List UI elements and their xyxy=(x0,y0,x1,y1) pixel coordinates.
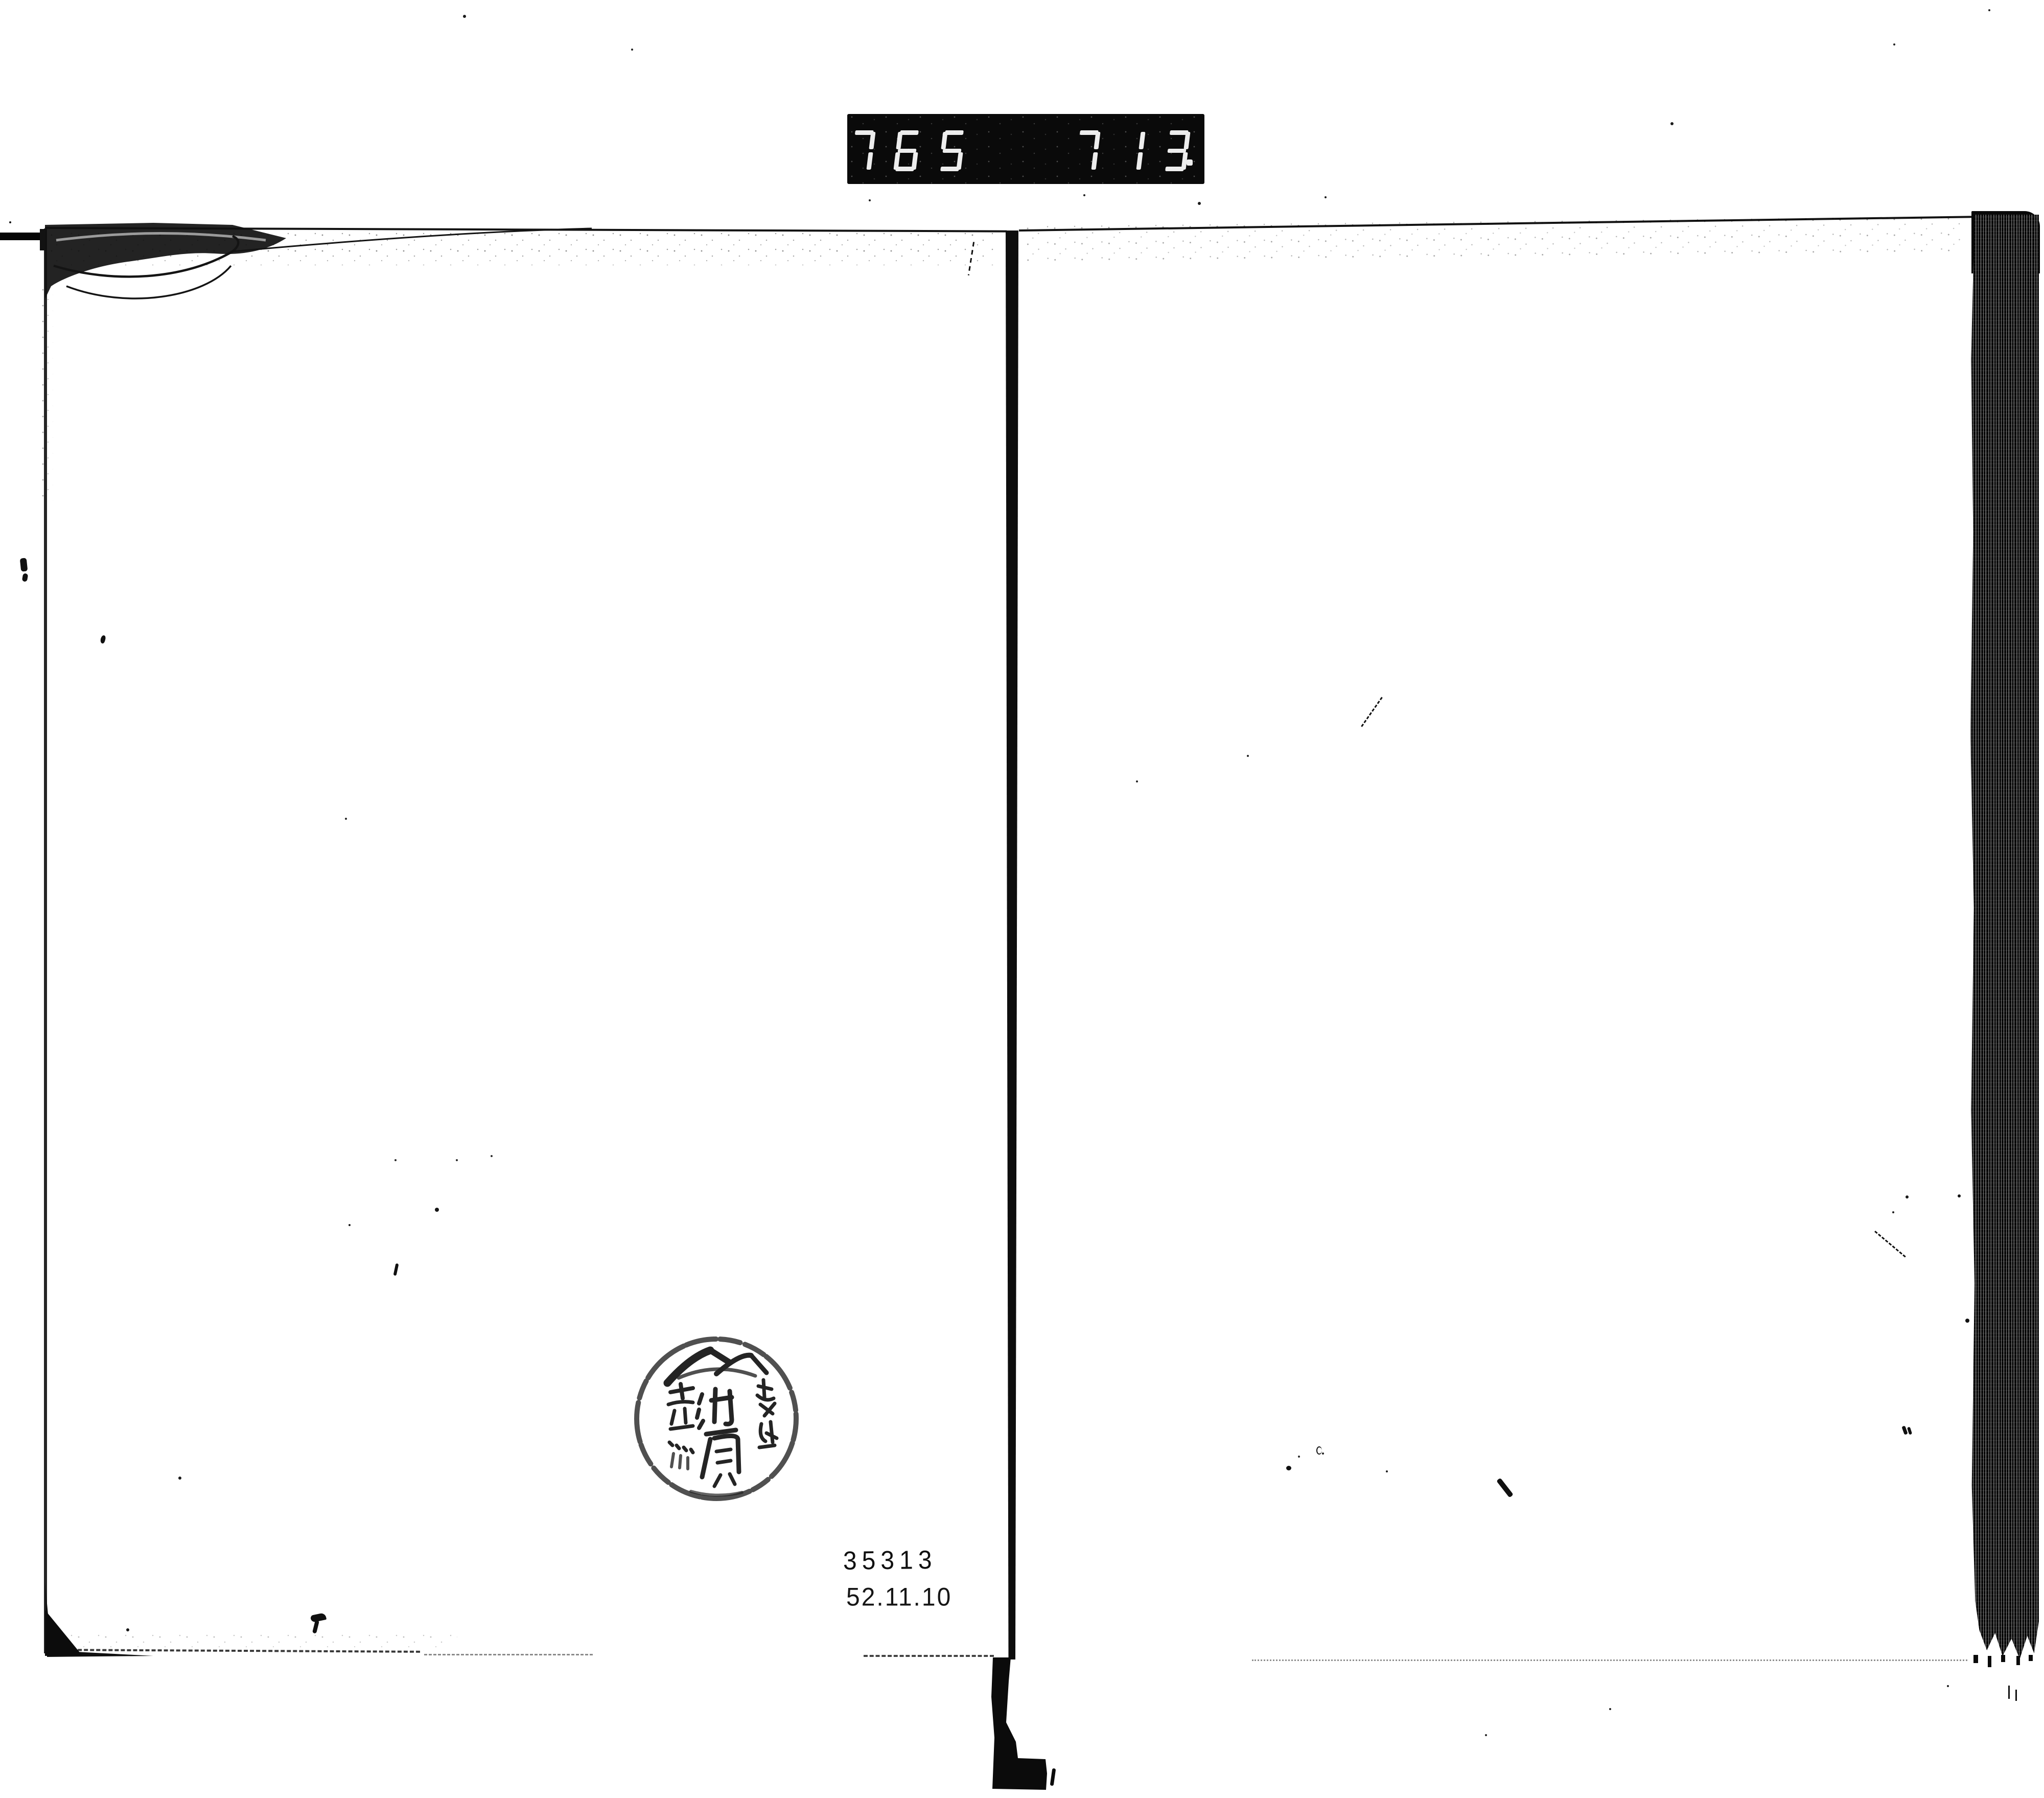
seal-left-column-strokes xyxy=(668,1384,693,1469)
top-edge-dust-right xyxy=(1025,215,1965,262)
scanned-book-spread: 35313 52.11.10 xyxy=(0,0,2044,1798)
seven-seg-digit xyxy=(893,130,921,171)
seal-crest-icon xyxy=(667,1350,766,1383)
spine-tail xyxy=(991,1657,1056,1790)
cover-tab-root xyxy=(40,229,47,250)
ink-dot-blob xyxy=(1286,1466,1291,1470)
fore-edge-band xyxy=(1970,215,2039,1659)
date-stamp: 52.11.10 xyxy=(846,1583,952,1612)
seven-seg-digit xyxy=(938,130,966,171)
below-edge-dash-a xyxy=(2008,1686,2010,1699)
seven-seg-digit xyxy=(1118,130,1146,171)
margin-blob xyxy=(20,558,28,571)
dashed-scratch-fore-edge xyxy=(1874,1231,1906,1257)
owner-seal-stamp xyxy=(630,1329,803,1503)
seal-right-column-strokes xyxy=(757,1380,777,1447)
seven-seg-digit xyxy=(1073,130,1101,171)
smudge-mark-tail xyxy=(312,1620,319,1633)
small-scratch-left-page xyxy=(393,1263,399,1276)
fore-edge-bottom-fray xyxy=(1973,1655,2033,1667)
scratch-mark-right-page xyxy=(1361,697,1383,727)
curl-speck xyxy=(1316,1446,1322,1455)
double-tick-a xyxy=(1901,1425,1908,1435)
ink-slash-mark xyxy=(1496,1478,1514,1497)
cover-tab xyxy=(0,233,40,240)
page-noise-specks xyxy=(0,0,2,2)
margin-blob-lower xyxy=(22,573,29,582)
seven-seg-digit xyxy=(1163,130,1191,171)
below-edge-dash-b xyxy=(2015,1690,2017,1701)
left-edge-texture xyxy=(40,286,53,501)
comma-speck xyxy=(100,635,106,644)
left-page-bottom-edge-faint xyxy=(424,1654,593,1655)
seal-bottom-squiggle xyxy=(691,1491,742,1495)
scan-artifacts-overlay xyxy=(0,0,2044,1798)
left-page-bottom-edge-near-gutter xyxy=(864,1655,994,1657)
bottom-edge-dust-left xyxy=(49,1633,457,1651)
frame-counter-label xyxy=(847,114,1204,184)
book-gutter xyxy=(1006,230,1018,1659)
seal-center-column-strokes xyxy=(697,1389,739,1486)
accession-number: 35313 xyxy=(843,1545,937,1576)
right-page-bottom-edge xyxy=(1252,1659,1967,1661)
double-tick-b xyxy=(1907,1426,1912,1435)
top-edge-dust-left xyxy=(49,232,996,265)
seven-seg-digit xyxy=(848,130,876,171)
counter-decimal-dot xyxy=(1187,159,1193,166)
